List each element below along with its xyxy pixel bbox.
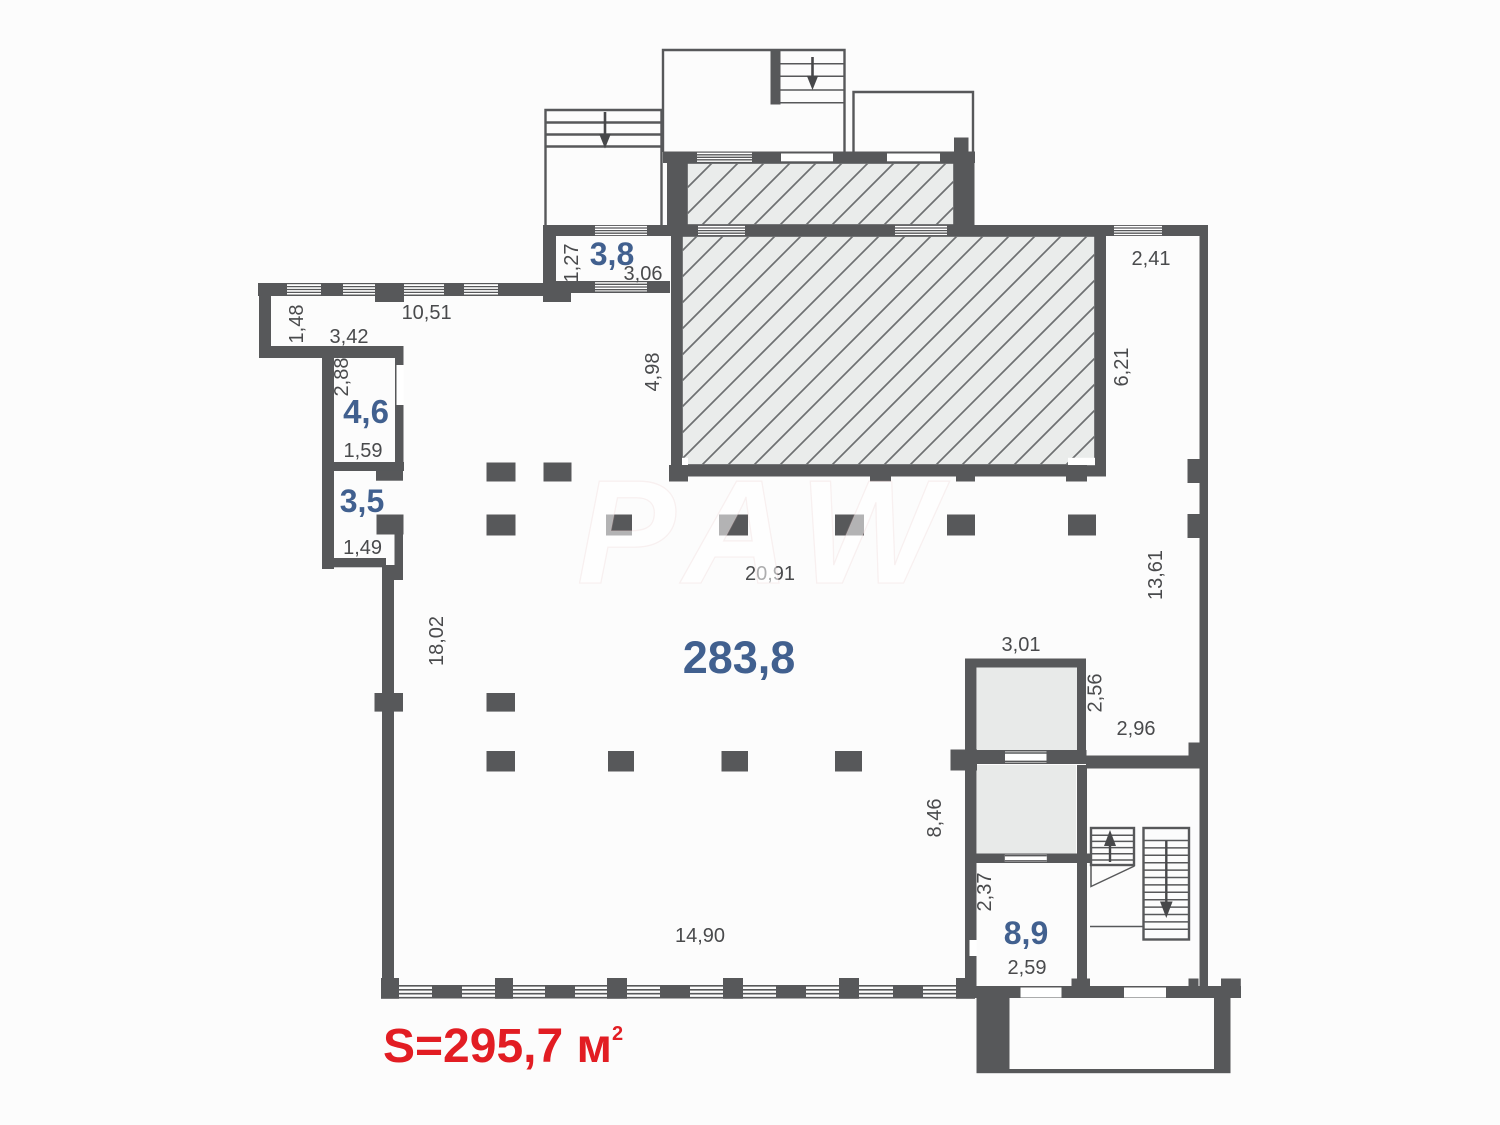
svg-text:13,61: 13,61 — [1145, 550, 1167, 600]
svg-text:8,46: 8,46 — [924, 799, 946, 838]
svg-text:10,51: 10,51 — [402, 302, 452, 324]
svg-text:S=295,7 м2: S=295,7 м2 — [383, 1020, 623, 1073]
svg-text:8,9: 8,9 — [1004, 915, 1048, 951]
svg-text:6,21: 6,21 — [1111, 348, 1133, 387]
svg-text:1,59: 1,59 — [344, 440, 383, 462]
svg-text:2,41: 2,41 — [1132, 248, 1171, 270]
svg-text:4,6: 4,6 — [343, 393, 389, 430]
svg-text:1,48: 1,48 — [286, 305, 308, 344]
svg-text:283,8: 283,8 — [683, 632, 796, 683]
svg-text:2,37: 2,37 — [974, 873, 996, 912]
svg-text:2,96: 2,96 — [1117, 718, 1156, 740]
svg-text:14,90: 14,90 — [675, 925, 725, 947]
svg-text:PAW: PAW — [577, 450, 957, 615]
svg-text:3,06: 3,06 — [624, 263, 663, 285]
svg-text:1,27: 1,27 — [561, 244, 583, 283]
svg-text:18,02: 18,02 — [426, 616, 448, 666]
svg-text:2,88: 2,88 — [331, 358, 353, 397]
svg-text:2,59: 2,59 — [1008, 957, 1047, 979]
svg-text:4,98: 4,98 — [642, 353, 664, 392]
svg-text:3,5: 3,5 — [340, 483, 384, 519]
svg-text:1,49: 1,49 — [343, 537, 382, 559]
svg-text:3,42: 3,42 — [330, 326, 369, 348]
svg-text:2,56: 2,56 — [1085, 674, 1107, 713]
svg-text:3,01: 3,01 — [1002, 634, 1041, 656]
